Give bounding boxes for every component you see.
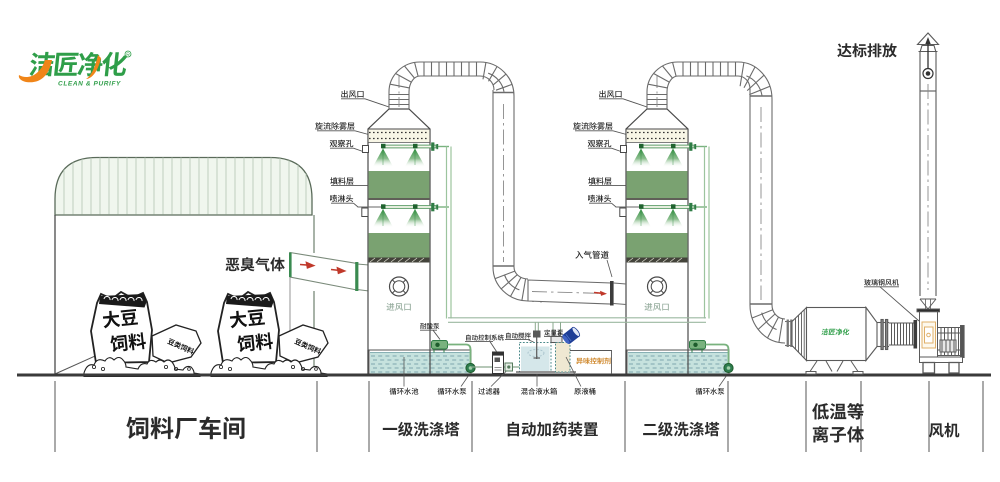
svg-text:CLEAN & PURIFY: CLEAN & PURIFY: [58, 81, 121, 88]
svg-text:R: R: [126, 53, 130, 59]
